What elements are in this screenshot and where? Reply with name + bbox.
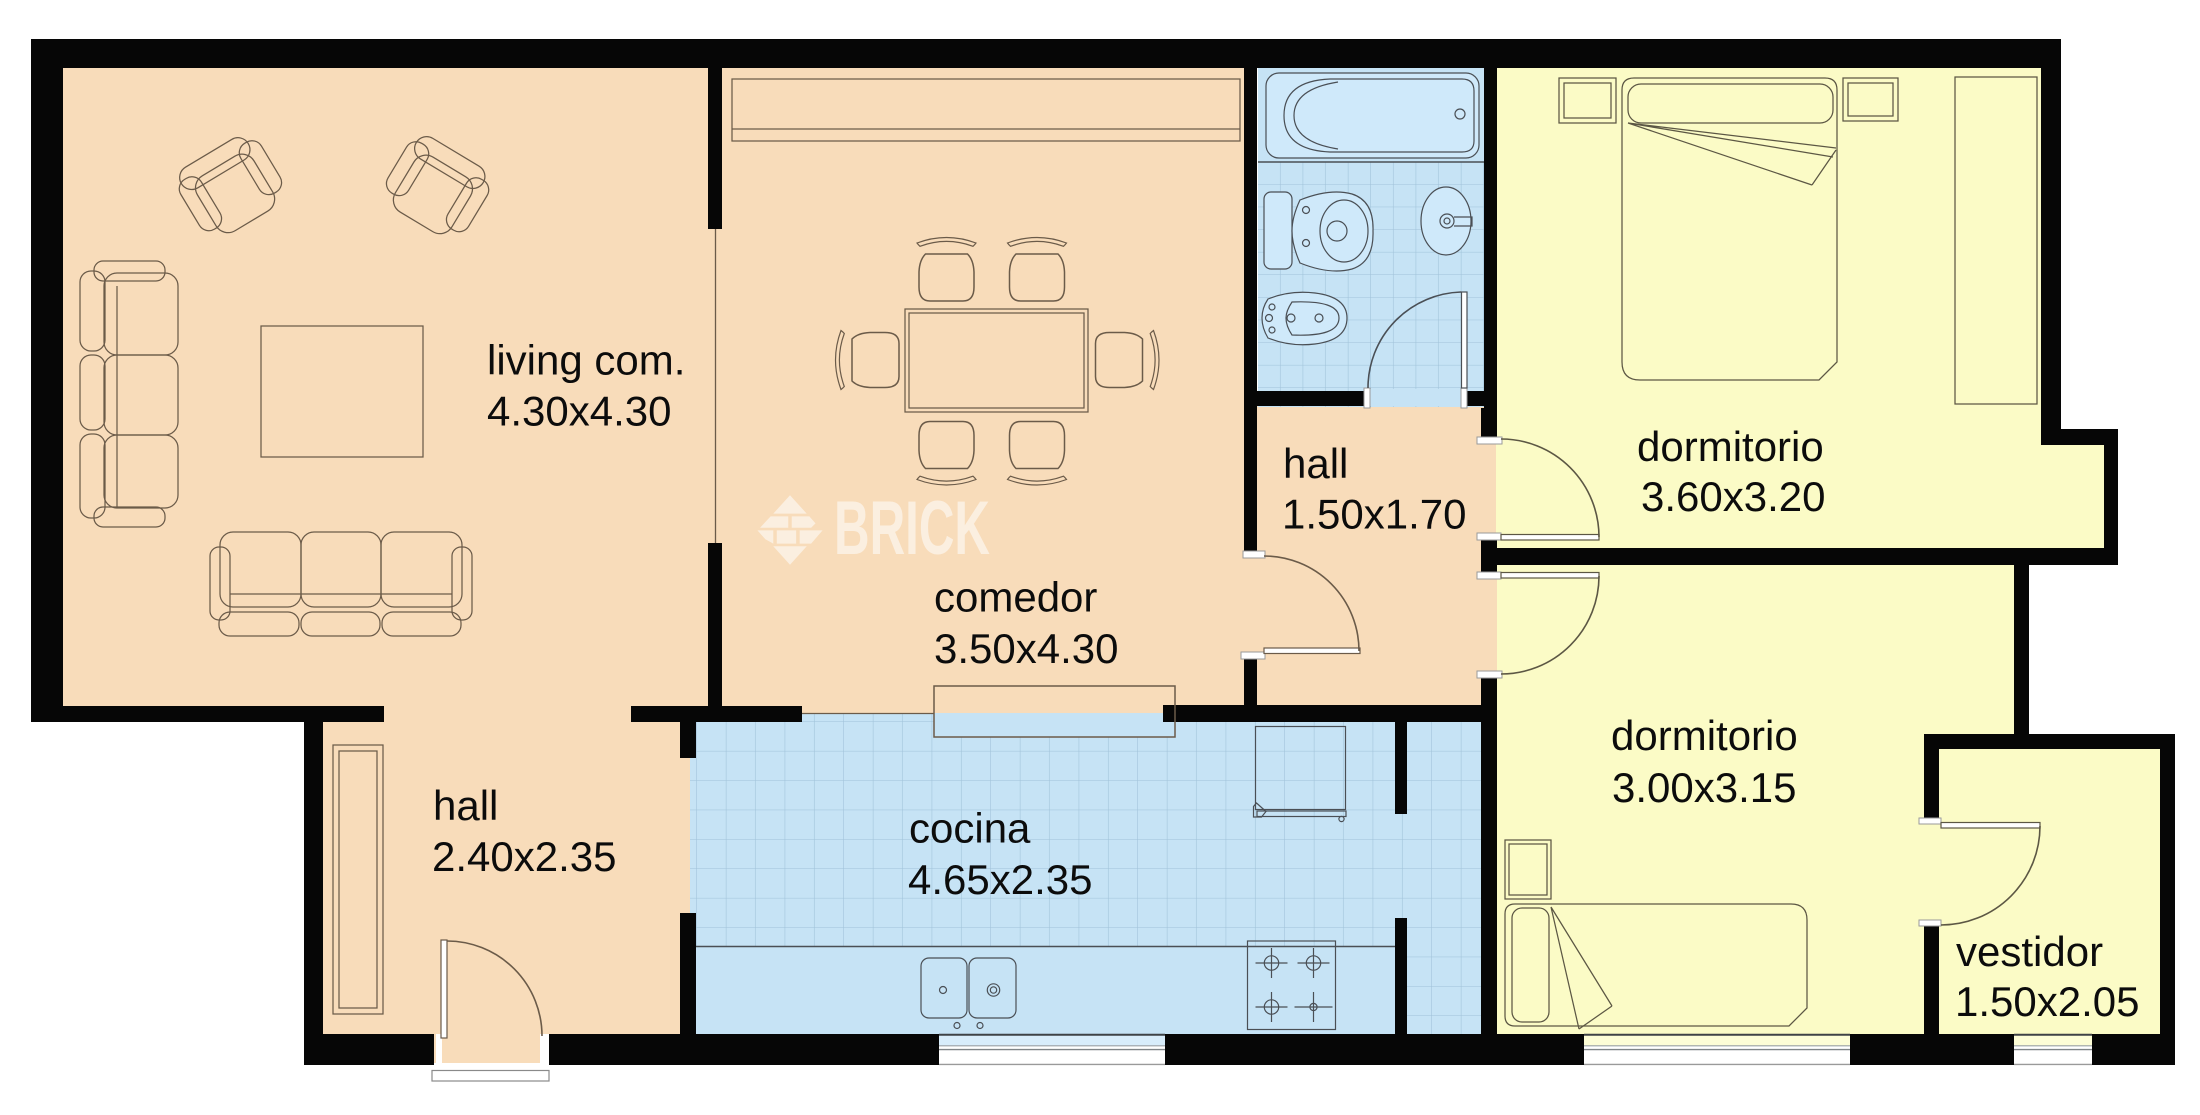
svg-text:vestidor: vestidor (1956, 928, 2103, 975)
svg-text:4.30x4.30: 4.30x4.30 (487, 388, 672, 435)
svg-text:hall: hall (1283, 440, 1348, 487)
svg-text:living com.: living com. (487, 337, 685, 384)
svg-text:comedor: comedor (934, 574, 1097, 621)
svg-text:cocina: cocina (909, 805, 1031, 852)
svg-text:BRICK: BRICK (834, 486, 990, 571)
svg-text:3.50x4.30: 3.50x4.30 (934, 625, 1119, 672)
svg-text:3.60x3.20: 3.60x3.20 (1641, 473, 1826, 520)
svg-text:dormitorio: dormitorio (1637, 423, 1824, 470)
svg-text:3.00x3.15: 3.00x3.15 (1612, 764, 1797, 811)
svg-text:dormitorio: dormitorio (1611, 712, 1798, 759)
svg-text:2.40x2.35: 2.40x2.35 (432, 833, 617, 880)
svg-text:hall: hall (433, 782, 498, 829)
svg-text:4.65x2.35: 4.65x2.35 (908, 856, 1093, 903)
svg-text:1.50x2.05: 1.50x2.05 (1955, 978, 2140, 1025)
svg-text:1.50x1.70: 1.50x1.70 (1282, 491, 1467, 538)
